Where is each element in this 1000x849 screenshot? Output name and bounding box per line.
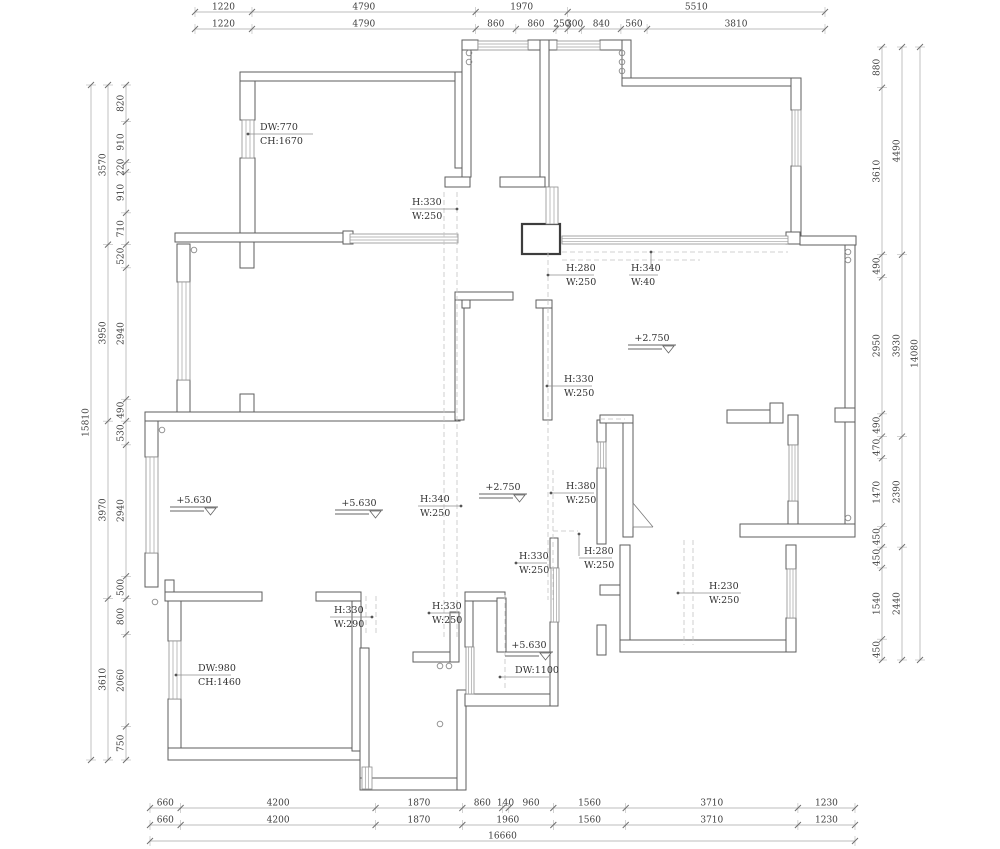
dimension-chain-top-row-2: 122047908608602503008405603810: [192, 20, 828, 35]
dimension-label: 4200: [267, 799, 290, 809]
dimension-label: 450: [873, 641, 883, 658]
dimension-label: 910: [117, 184, 127, 201]
dimension-label: 1230: [815, 799, 838, 809]
dimension-label: 2940: [117, 499, 127, 522]
dimension-label: 820: [117, 94, 127, 111]
elevation-label: +5.630: [341, 498, 376, 509]
dimension-label: 4200: [267, 816, 290, 826]
annotation-text: W:250: [584, 560, 614, 571]
dimension-label: 960: [522, 799, 539, 809]
floor-plan-svg: 1220479019705510122047908608602503008405…: [0, 0, 1000, 849]
dimension-label: 1220: [212, 3, 235, 13]
circle-marker: [437, 721, 443, 727]
dimension-label: 1870: [408, 816, 431, 826]
elevation-label: +5.630: [511, 640, 546, 651]
dimension-label: 660: [157, 799, 174, 809]
dimension-label: 500: [117, 579, 127, 596]
dimension-label: 470: [873, 439, 883, 456]
annotation: H:280W:250: [578, 533, 615, 571]
circle-marker: [159, 427, 165, 433]
annotation-text: W:250: [566, 277, 596, 288]
window-hatch: [562, 236, 788, 244]
dimension-label: 490: [117, 401, 127, 418]
annotation: H:340W:250: [418, 494, 462, 519]
dimension-label: 880: [873, 58, 883, 75]
dimension-label: 490: [873, 257, 883, 274]
annotation-text: H:380: [566, 481, 596, 492]
annotation-text: W:250: [709, 595, 739, 606]
dimension-label: 2940: [117, 322, 127, 345]
annotation-leader-dot: [677, 592, 680, 595]
dimension-label: 2440: [893, 592, 903, 615]
dimension-label: 1560: [578, 799, 601, 809]
window-hatch: [546, 187, 558, 224]
window-hatch: [598, 442, 606, 468]
annotation: H:330W:250: [515, 551, 550, 576]
elevation-triangle-icon: [205, 508, 216, 515]
annotation-text: H:280: [566, 263, 596, 274]
dimension-label: 750: [117, 734, 127, 751]
dimension-chain-right-outer: 14080: [911, 44, 926, 663]
dimension-label: 140: [497, 799, 514, 809]
corner-detail: [633, 503, 653, 527]
annotation-text: H:230: [709, 581, 739, 592]
elevation-triangle-icon: [663, 346, 674, 353]
dimension-label: 560: [625, 20, 642, 30]
annotation-leader-dot: [499, 676, 502, 679]
elevation-label: +2.750: [485, 482, 520, 493]
dimension-label: 16660: [488, 832, 517, 842]
dimension-label: 910: [117, 133, 127, 150]
annotation: H:230W:250: [677, 581, 741, 606]
dimension-label: 860: [474, 799, 491, 809]
elevation-marker: +5.630: [505, 640, 553, 660]
annotation-text: W:250: [420, 508, 450, 519]
annotation-text: W:250: [519, 565, 549, 576]
dimension-label: 1560: [578, 816, 601, 826]
annotation-text: H:330: [519, 551, 549, 562]
annotation: DW:770CH:1670: [247, 122, 313, 147]
annotation-text: W:250: [432, 615, 462, 626]
annotation-text: H:330: [412, 197, 442, 208]
dimension-chain-top-row-1: 1220479019705510: [192, 3, 828, 18]
dimension-label: 220: [117, 158, 127, 175]
dimension-label: 2060: [117, 669, 127, 692]
annotation-text: DW:980: [198, 663, 236, 674]
dimension-label: 1470: [873, 481, 883, 504]
elevation-marker: +5.630: [335, 498, 383, 518]
dimension-label: 490: [873, 416, 883, 433]
circle-marker: [437, 663, 443, 669]
dimension-label: 1870: [408, 799, 431, 809]
circle-marker: [191, 247, 197, 253]
dimension-chain-right-inner: 8803610490295049047014704504501540450: [873, 44, 888, 663]
annotation-text: H:330: [432, 601, 462, 612]
elevation-triangle-icon: [514, 495, 525, 502]
dimension-label: 800: [117, 608, 127, 625]
dimension-label: 710: [117, 220, 127, 237]
dimension-label: 2950: [873, 334, 883, 357]
dimension-label: 3610: [873, 159, 883, 182]
annotation-leader-dot: [247, 133, 250, 136]
annotation: DW:980CH:1460: [175, 663, 241, 688]
annotation-leader-dot: [650, 251, 653, 254]
dimension-chain-right-mid: 4490393023902440: [893, 44, 908, 663]
window-hatch: [792, 110, 801, 166]
annotation-text: CH:1670: [260, 136, 303, 147]
annotation-text: W:250: [412, 211, 442, 222]
annotation-text: CH:1460: [198, 677, 241, 688]
annotation-text: H:340: [631, 263, 661, 274]
annotation: H:330W:250: [546, 374, 595, 399]
dimension-label: 300: [566, 20, 583, 30]
annotation: H:280W:250: [547, 263, 597, 288]
annotation-text: H:330: [334, 605, 364, 616]
dimension-label: 530: [117, 424, 127, 441]
annotation: H:380W:250: [550, 481, 597, 506]
dimension-label: 3710: [700, 816, 723, 826]
annotation-text: H:340: [420, 494, 450, 505]
dimension-label: 1970: [510, 3, 533, 13]
elevation-triangle-icon: [540, 653, 551, 660]
window-hatch: [146, 457, 158, 553]
window-hatch: [787, 569, 796, 618]
dimension-label: 3710: [700, 799, 723, 809]
window-hatch: [478, 41, 528, 50]
annotation-text: W:250: [564, 388, 594, 399]
dimension-label: 3950: [99, 321, 109, 344]
dimension-label: 4790: [352, 3, 375, 13]
dimension-label: 5510: [685, 3, 708, 13]
annotation-leader-dot: [428, 612, 431, 615]
annotation-leader-dot: [547, 274, 550, 277]
annotation-text: H:330: [564, 374, 594, 385]
dimension-chain-left-mid: 3570395039703610: [99, 82, 114, 763]
dimension-label: 3970: [99, 498, 109, 521]
dimension-label: 15810: [82, 408, 92, 437]
annotation-leader-dot: [515, 562, 518, 565]
structural-column: [522, 224, 560, 254]
elevation-triangle-icon: [370, 511, 381, 518]
annotation-leader-dot: [371, 616, 374, 619]
circle-marker: [446, 663, 452, 669]
dimension-label: 14080: [911, 339, 921, 368]
dimension-label: 3570: [99, 153, 109, 176]
dimension-chain-bottom-total: 16660: [147, 832, 858, 847]
window-hatch: [551, 568, 559, 622]
dimension-label: 1960: [496, 816, 519, 826]
dimension-label: 1220: [212, 20, 235, 30]
annotation-leader-dot: [578, 533, 581, 536]
window-hatch: [789, 445, 798, 501]
dimension-label: 840: [593, 20, 610, 30]
dimension-chain-left-outer: 15810: [82, 82, 97, 763]
annotation-leader-dot: [460, 505, 463, 508]
elevation-marker: +5.630: [170, 495, 218, 515]
annotation-text: W:290: [334, 619, 364, 630]
dimension-label: 450: [873, 528, 883, 545]
dimension-chain-bottom-row-1: 66042001870860140960156037101230: [147, 799, 858, 814]
elevation-label: +2.750: [634, 333, 669, 344]
dimension-label: 2390: [893, 480, 903, 503]
dimension-label: 520: [117, 247, 127, 264]
dimension-label: 860: [527, 20, 544, 30]
window-hatch: [169, 641, 181, 699]
dimension-label: 860: [487, 20, 504, 30]
annotation-leader-dot: [175, 674, 178, 677]
dimension-label: 450: [873, 549, 883, 566]
dimension-label: 1230: [815, 816, 838, 826]
dimension-label: 3610: [99, 668, 109, 691]
annotation-text: DW:1100: [515, 665, 559, 676]
window-hatch: [466, 647, 474, 694]
annotation: H:330W:250: [410, 197, 458, 222]
annotation: H:340W:40: [629, 251, 661, 288]
dimension-chain-left-inner: 8209102209107105202940490530294050080020…: [117, 82, 132, 763]
annotation-text: W:250: [566, 495, 596, 506]
elevation-marker: +2.750: [628, 333, 676, 353]
window-hatch: [178, 282, 190, 380]
annotation-leader-dot: [456, 208, 459, 211]
elevation-label: +5.630: [176, 495, 211, 506]
window-hatch: [242, 120, 254, 158]
floor-plan-canvas: 1220479019705510122047908608602503008405…: [0, 0, 1000, 849]
dimension-label: 660: [157, 816, 174, 826]
elevation-marker: +2.750: [479, 482, 527, 502]
annotation-leader-dot: [550, 492, 553, 495]
dimension-chain-bottom-row-2: 660420018701960156037101230: [147, 816, 858, 831]
dimension-label: 1540: [873, 592, 883, 615]
dimension-label: 3930: [893, 334, 903, 357]
dimension-label: 4790: [352, 20, 375, 30]
annotation-text: DW:770: [260, 122, 298, 133]
window-hatch: [362, 767, 372, 789]
annotation-leader-dot: [546, 385, 549, 388]
window-hatch: [350, 234, 458, 243]
annotation-text: H:280: [584, 546, 614, 557]
dimension-label: 3810: [725, 20, 748, 30]
dimension-label: 4490: [893, 139, 903, 162]
circle-marker: [152, 599, 158, 605]
window-hatch: [557, 41, 600, 50]
annotation-text: W:40: [631, 277, 655, 288]
